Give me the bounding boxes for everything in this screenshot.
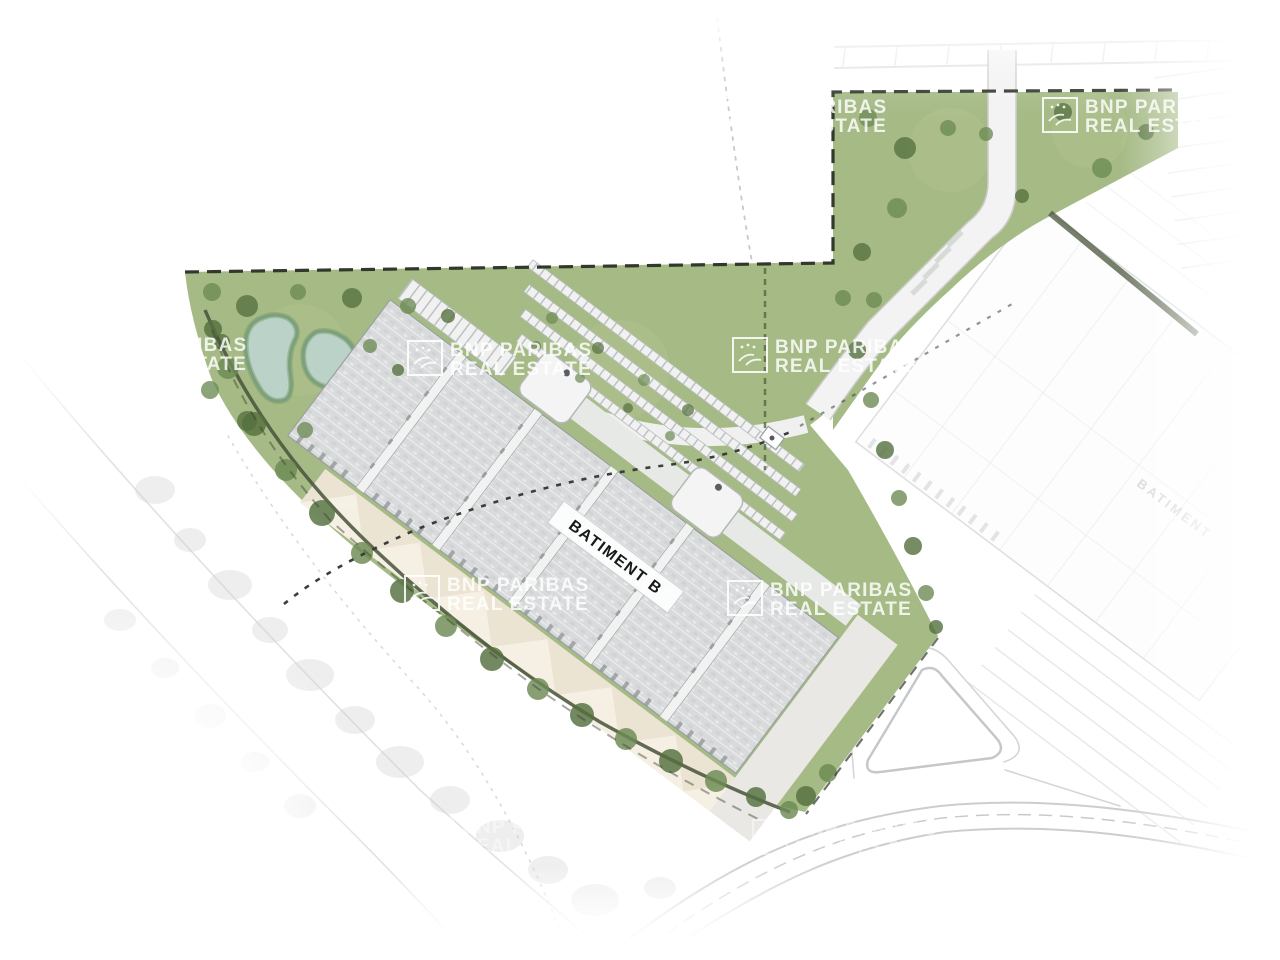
watermark-line2: REAL ESTATE [450,359,592,380]
watermark: BNP PARIBAS REAL ESTATE [753,819,937,859]
watermark-line1: BNP PARIBAS [450,340,592,361]
watermark-line1: BNP PARIBAS [775,337,917,358]
watermark-line2: REAL ESTATE [1085,116,1227,137]
south-road [612,803,1280,960]
north-road-faint [835,39,1280,68]
watermark-line2: REAL ESTATE [770,599,912,620]
watermark-line1: BNP PARIBAS [795,819,937,840]
watermark-line2: REAL ESTATE [745,116,887,137]
site-plan-canvas: BATIMENT [0,0,1280,960]
watermark-line2: REAL ESTATE [105,354,247,375]
watermark-line1: BNP PARIBAS [462,817,604,838]
watermark-line1: BNP PARIBAS [1085,97,1227,118]
watermark-line2: REAL ESTATE [775,356,917,377]
watermark: BNP PARIBAS REAL ESTATE [63,335,247,375]
bnp-logo-icon [63,336,97,370]
watermark-line1: BNP PARIBAS [447,575,589,596]
watermark-line1: BNP PARIBAS [745,97,887,118]
watermark-line1: BNP PARIBAS [105,335,247,356]
watermark-line2: REAL ESTATE [447,594,589,615]
watermark-line1: BNP PARIBAS [770,580,912,601]
watermark-line2: REAL ESTATE [462,836,604,857]
site-plan-page: BATIMENT [0,0,1280,960]
bnp-logo-icon [420,818,454,852]
watermark: BNP PARIBAS REAL ESTATE [420,817,604,857]
watermark-line2: REAL ESTATE [795,838,937,859]
